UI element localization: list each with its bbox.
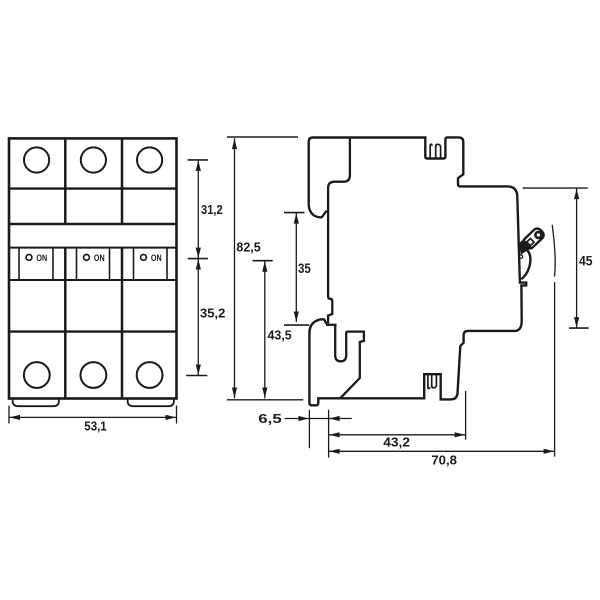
svg-text:82,5: 82,5 <box>236 239 260 254</box>
svg-text:6,5: 6,5 <box>258 411 281 426</box>
svg-text:ON: ON <box>36 253 47 263</box>
svg-text:35: 35 <box>298 261 311 276</box>
svg-text:70,8: 70,8 <box>431 453 457 468</box>
svg-text:53,1: 53,1 <box>84 419 106 434</box>
svg-text:35,2: 35,2 <box>200 306 225 321</box>
svg-text:ON: ON <box>151 253 162 263</box>
svg-text:45: 45 <box>579 253 593 269</box>
svg-text:43,5: 43,5 <box>268 328 292 343</box>
svg-text:43,2: 43,2 <box>383 435 410 450</box>
svg-text:ON: ON <box>94 253 105 263</box>
svg-text:31,2: 31,2 <box>201 202 223 217</box>
